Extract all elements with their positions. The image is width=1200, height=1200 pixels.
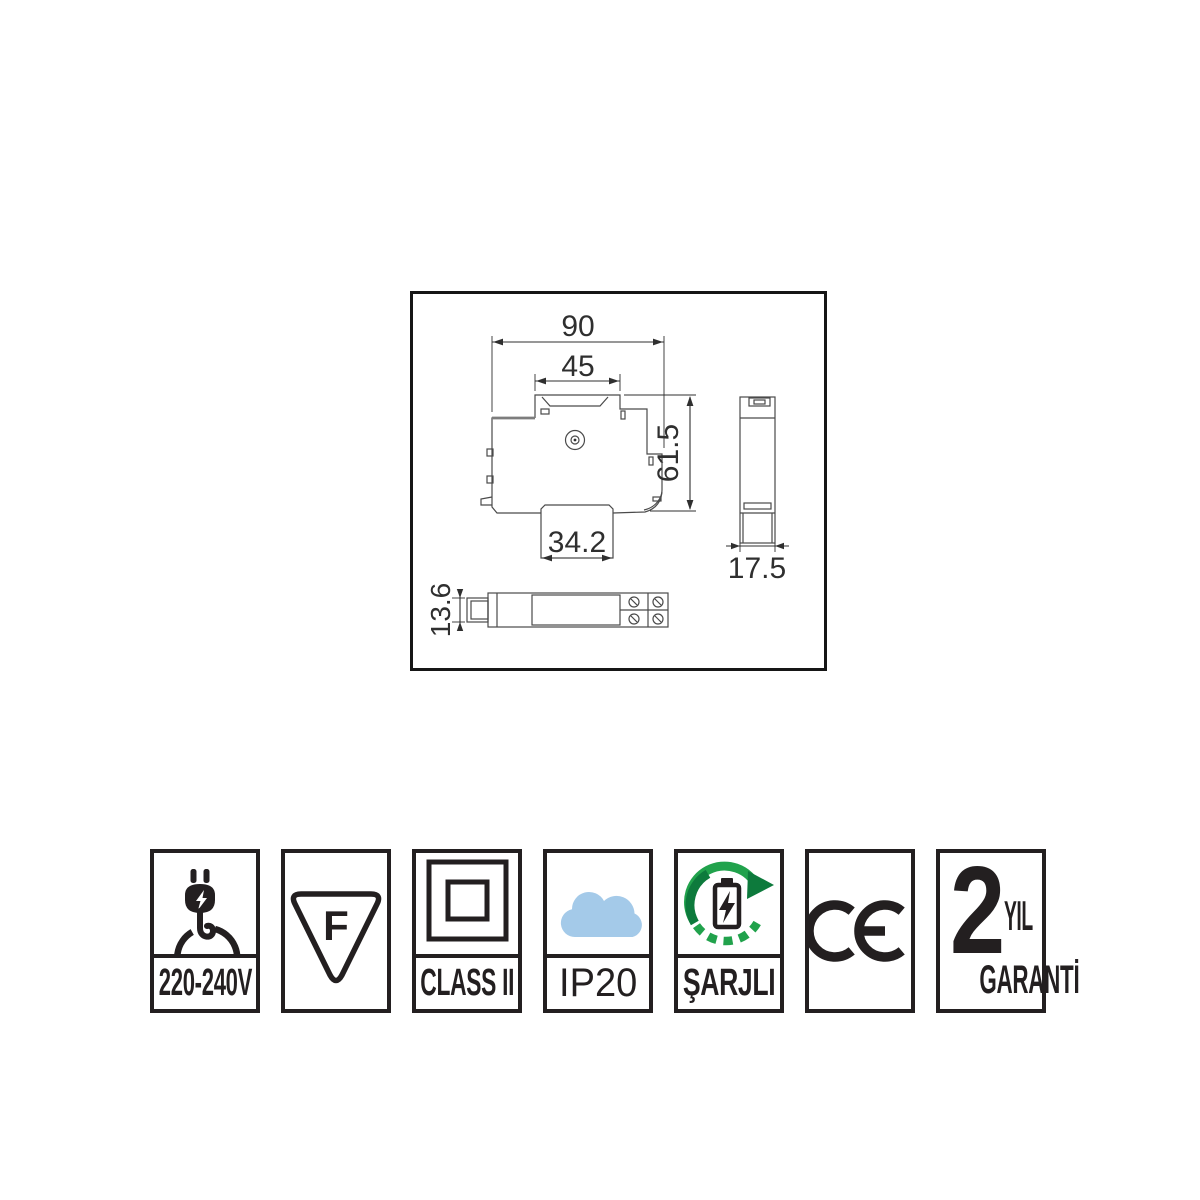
dim-overall-width-label: 90 [561,310,594,343]
f-triangle-svg: F [285,853,387,1009]
spec-sheet-page: 90 45 61.5 34.2 [0,0,1200,1200]
rechargeable-label: ŞARJLI [683,962,775,1005]
warranty-label-row: GARANTİ [940,958,1042,1003]
double-square-icon [416,853,518,958]
battery-recycle-svg [678,853,780,958]
badge-ce-mark [805,849,915,1013]
plug-icon [154,853,256,958]
dim-top-width-label: 45 [561,350,594,383]
dim-bottom-width-label: 34.2 [548,526,606,559]
cloud-icon [547,853,649,958]
dimension-17-5: 17.5 [726,543,789,585]
dim-clip-height-label: 13.6 [425,583,456,638]
badge-rechargeable: ŞARJLI [674,849,784,1013]
badge-ip-rating: IP20 [543,849,653,1013]
plug-icon-svg [154,853,256,958]
dimension-45: 45 [535,350,620,391]
warranty-years: 2 [950,849,1005,973]
f-triangle-icon: F [285,853,387,1009]
warranty-text: 2 YIL GARANTİ [940,853,1042,1009]
badge-rechargeable-labelstrip: ŞARJLI [678,954,780,1009]
double-square-svg [416,853,518,958]
ce-mark-icon [809,853,911,1009]
dim-side-width-label: 17.5 [728,552,786,585]
ip-label: IP20 [559,961,637,1006]
battery-recycle-icon [678,853,780,958]
ce-mark-svg [809,853,911,1009]
cloud-svg [547,853,649,958]
warranty-unit: YIL [1004,895,1033,937]
badge-voltage-labelstrip: 220-240V [154,954,256,1009]
dimension-61-5: 61.5 [624,395,696,511]
badge-ip-labelstrip: IP20 [547,954,649,1009]
technical-drawing: 90 45 61.5 34.2 [0,0,1200,1200]
drawing-frame [412,293,826,670]
f-letter: F [323,902,349,949]
badge-class-labelstrip: CLASS II [416,954,518,1009]
side-view [740,397,775,543]
bottom-view [467,593,668,627]
dim-height-label: 61.5 [652,424,685,482]
voltage-label: 220-240V [158,962,251,1005]
dimension-34-2: 34.2 [542,526,612,561]
badge-voltage: 220-240V [150,849,260,1013]
badge-warranty: 2 YIL GARANTİ [936,849,1046,1013]
warranty-label: GARANTİ [979,958,1079,1003]
badge-class-ii: CLASS II [412,849,522,1013]
dimension-13-6: 13.6 [425,583,465,638]
class-label: CLASS II [420,962,514,1005]
badge-thermal-fuse: F [281,849,391,1013]
